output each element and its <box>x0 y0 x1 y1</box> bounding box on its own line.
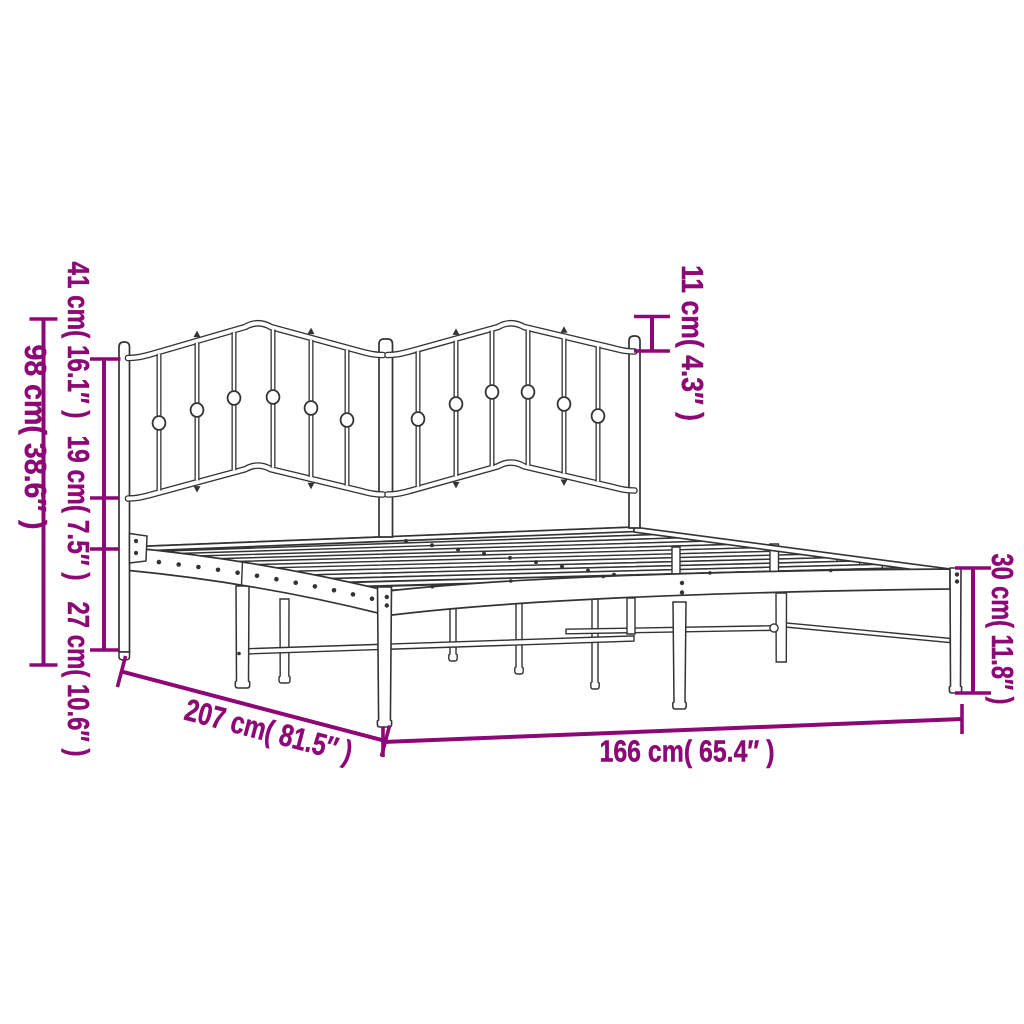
svg-text:98 cm( 38.6″ ): 98 cm( 38.6″ ) <box>18 345 53 530</box>
svg-text:166 cm( 65.4″ ): 166 cm( 65.4″ ) <box>600 734 775 769</box>
svg-text:41 cm( 16.1″ ): 41 cm( 16.1″ ) <box>61 262 96 419</box>
svg-text:27 cm( 10.6″ ): 27 cm( 10.6″ ) <box>61 602 96 757</box>
svg-text:11 cm( 4.3″ ): 11 cm( 4.3″ ) <box>675 265 710 421</box>
svg-text:19 cm( 7.5″ ): 19 cm( 7.5″ ) <box>61 436 96 581</box>
svg-text:30 cm( 11.8″ ): 30 cm( 11.8″ ) <box>985 554 1020 705</box>
